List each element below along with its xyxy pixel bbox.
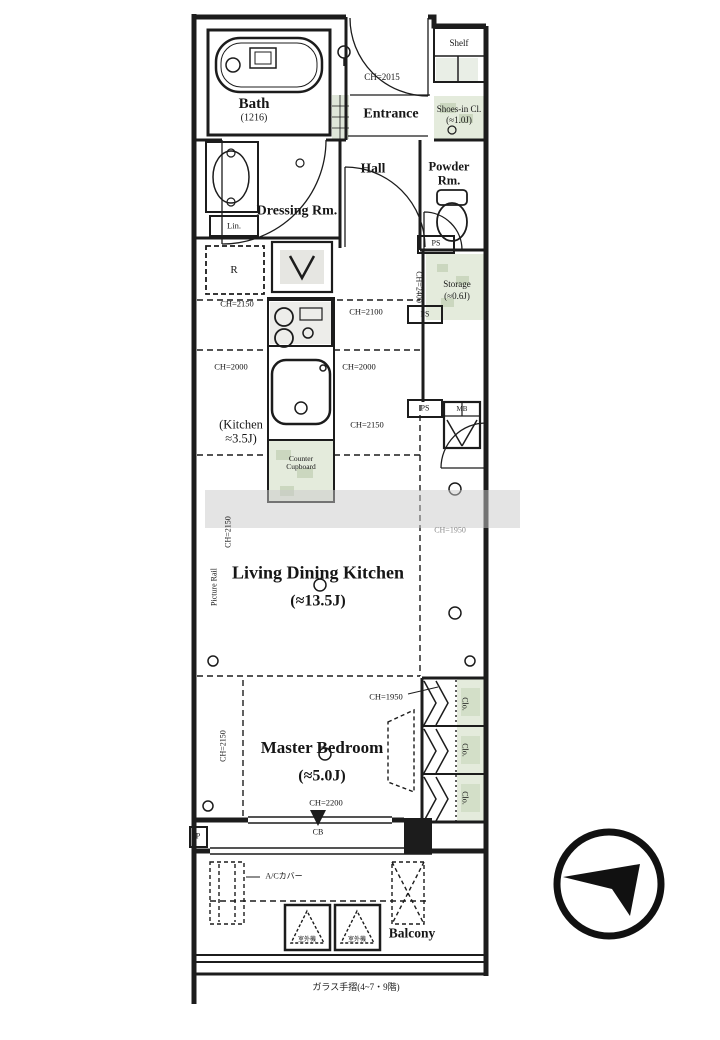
linen-label: Lin.	[227, 221, 241, 230]
ch-kitchen-s-label: CH=2150	[350, 420, 384, 429]
ac-cover-box	[210, 862, 244, 924]
refrigerator-label: R	[230, 265, 237, 277]
meter-box-label: MB	[457, 406, 468, 414]
ch-entrance-label: CH=2015	[364, 73, 400, 83]
ch-ldk-east-label: CH=1950	[434, 527, 466, 536]
windows-railing	[196, 687, 486, 974]
bath-room-label: Bath	[239, 96, 270, 112]
outdoor-unit-label: 室外機	[348, 937, 366, 943]
picture-rail-label: Picture Rail	[211, 568, 220, 606]
closet-label: Clo.	[460, 743, 469, 757]
hall-door	[345, 167, 425, 247]
ldk-size-label: (≈13.5J)	[290, 592, 345, 609]
outdoor-unit-label: 室外機	[298, 937, 316, 943]
glass-handrail-label: ガラス手摺(4~7・9階)	[312, 983, 399, 993]
storage-size-label: (≈0.6J)	[444, 292, 470, 302]
powder-room-label: Powder Rm.	[418, 161, 480, 188]
ch-storage-label: CH=2400	[414, 271, 423, 303]
floor-plan-drawing	[0, 0, 720, 1040]
light-symbol	[449, 607, 461, 619]
floor-plan: Bath (1216) CH=2015 Entrance Shelf Shoes…	[0, 0, 720, 1040]
light-symbol	[465, 656, 475, 666]
ch-hall-side-label: CH=2100	[349, 307, 383, 316]
entrance-room-label: Entrance	[363, 106, 418, 121]
ch-kitchen-e-label: CH=2000	[342, 362, 376, 371]
north-arrow-icon	[557, 832, 661, 936]
dressing-room-label: Dressing Rm.	[256, 203, 338, 218]
balcony-window	[210, 848, 432, 854]
ps-label: PS	[421, 311, 430, 320]
ac-cover-label: A/Cカバー	[265, 873, 302, 882]
outlet-symbol	[203, 801, 213, 811]
entrance-door	[350, 18, 428, 96]
balcony-railing	[196, 955, 486, 962]
bathtub-icon	[216, 38, 322, 92]
master-bedroom-size-label: (≈5.0J)	[298, 767, 345, 784]
kitchen-size-label: ≈3.5J)	[225, 432, 257, 446]
powder-door	[424, 212, 462, 250]
ch-kitchen-w-label: CH=2000	[214, 362, 248, 371]
watermark-band	[205, 490, 520, 528]
shelf-label: Shelf	[450, 39, 469, 49]
ps-label: PS	[432, 240, 441, 249]
door-arcs	[222, 18, 486, 468]
shoes-closet-label: Shoes-in Cl.	[437, 105, 482, 115]
bifold-door	[424, 729, 448, 773]
ldk-room-label: Living Dining Kitchen	[232, 563, 404, 582]
ch-kitchen-nw-label: CH=2150	[220, 299, 254, 308]
storage-room-label: Storage	[443, 280, 471, 290]
kitchen-room-label: (Kitchen	[219, 418, 263, 432]
closet-label: Clo.	[460, 697, 469, 711]
bath-size-label: (1216)	[241, 114, 268, 125]
ch-bedroom-w-label: CH=2150	[220, 730, 229, 762]
ps-label: PS	[421, 405, 430, 414]
counter-cupboard-label: Counter Cupboard	[275, 455, 327, 471]
cb-label: CB	[313, 829, 324, 838]
master-bedroom-label: Master Bedroom	[261, 739, 384, 757]
shoes-closet-size-label: (≈1.0J)	[446, 116, 472, 126]
vanity-icon	[206, 142, 258, 212]
ch-bedroom-n-label: CH=1950	[369, 692, 403, 701]
closet-label: Clo.	[460, 791, 469, 805]
balcony-room-label: Balcony	[389, 927, 436, 942]
bifold-door	[424, 777, 448, 821]
pole-label: P	[196, 833, 200, 842]
light-symbol	[208, 656, 218, 666]
ch-bedroom-s-label: CH=2200	[309, 798, 343, 807]
hall-room-label: Hall	[361, 162, 386, 177]
ch-ldk-west-label: CH=2150	[225, 516, 234, 548]
